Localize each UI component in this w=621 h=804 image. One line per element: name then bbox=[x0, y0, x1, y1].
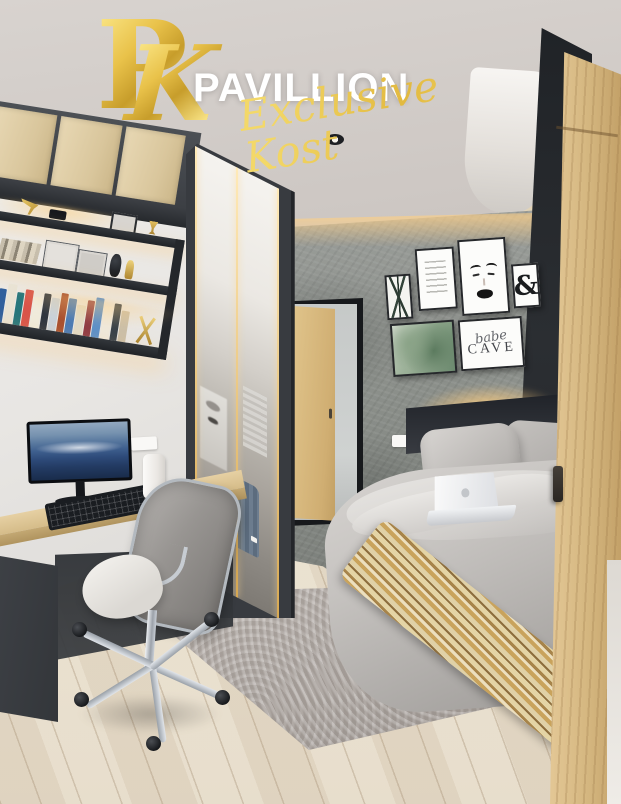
glass-reflection bbox=[243, 385, 267, 457]
babe-cave-poster: babe CAVE bbox=[458, 316, 525, 371]
gold-trophy bbox=[147, 221, 158, 235]
face-brow bbox=[486, 263, 497, 270]
face-lips bbox=[477, 289, 494, 299]
face-eye bbox=[487, 273, 494, 275]
black-vase bbox=[108, 253, 122, 277]
face-eye bbox=[472, 273, 479, 276]
botanical-poster bbox=[390, 320, 458, 377]
chair-caster bbox=[74, 692, 89, 707]
door-edge bbox=[607, 560, 621, 804]
bathroom-door bbox=[293, 306, 335, 521]
cabinet-door bbox=[50, 116, 122, 195]
ceiling-downlight bbox=[326, 134, 344, 145]
cabinet-door bbox=[116, 126, 186, 205]
wardrobe-led-strip bbox=[277, 188, 279, 619]
mountain-wallpaper bbox=[30, 421, 130, 480]
chair-caster bbox=[72, 622, 87, 637]
ampersand-poster: & bbox=[511, 263, 541, 309]
ampersand-glyph: & bbox=[513, 269, 539, 302]
chair-caster bbox=[204, 612, 219, 627]
door-handle bbox=[329, 409, 332, 419]
apple-logo-icon bbox=[461, 488, 470, 498]
brand-monogram-p: P bbox=[96, 4, 188, 126]
brand-monogram-k: K bbox=[113, 32, 229, 136]
chair-caster bbox=[215, 690, 230, 705]
brand-name: PAVILLION bbox=[193, 66, 409, 111]
palm-leaf-poster bbox=[384, 274, 413, 321]
chair-caster bbox=[146, 736, 161, 751]
desk-side-panel bbox=[0, 556, 58, 722]
face-brow bbox=[470, 264, 482, 273]
room-photo: & babe CAVE bbox=[0, 0, 621, 804]
entry-door-handle bbox=[553, 466, 563, 502]
face-nose bbox=[483, 278, 485, 285]
gallery-wall: & babe CAVE bbox=[377, 232, 549, 389]
gold-figurine bbox=[124, 260, 135, 280]
bathroom-doorway bbox=[287, 298, 363, 526]
text-poster bbox=[415, 247, 458, 312]
monitor-screen bbox=[26, 418, 132, 484]
face-art-poster bbox=[457, 237, 510, 316]
glass-reflection bbox=[200, 385, 227, 471]
light-switch bbox=[131, 436, 158, 450]
gold-decor bbox=[19, 198, 39, 216]
laptop bbox=[424, 471, 516, 533]
